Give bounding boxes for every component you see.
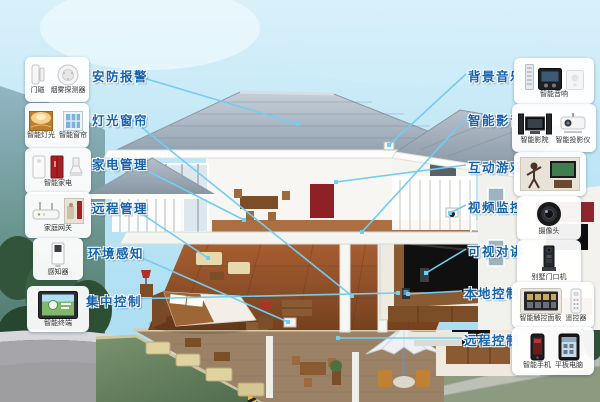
projector-icon [558,112,588,136]
touch-panel-icon [520,288,562,314]
device-caption: 智能手机 [523,362,551,370]
card-lighting: 智能灯光 智能窗帘 [25,103,89,148]
smart-home-diagram: 门磁 烟雾探测器 安防报警 智能灯光 [0,0,600,402]
fridge-icon [50,155,64,179]
label-central-control: 集中控制 [86,291,142,310]
label-video-intercom: 可视对讲 [468,241,524,260]
label-appliance-management: 家电管理 [92,154,148,173]
device-caption: 智能影院 [521,137,549,145]
device-caption: 烟雾探测器 [51,87,86,95]
range-hood-icon [68,155,84,179]
tablet-device: 平板电脑 [555,333,583,370]
dome-camera-icon [535,201,563,227]
label-remote-management: 远程管理 [92,198,148,217]
device-caption: 家庭网关 [44,225,72,233]
card-game [514,152,586,196]
smart-light-icon [29,111,53,131]
tablet-icon [558,333,580,361]
projector-device: 智能投影仪 [556,112,591,145]
card-av: 智能影院 智能投影仪 [512,104,596,152]
smoke-detector-device: 烟雾探测器 [51,64,86,95]
device-caption: 门磁 [31,87,45,95]
sensor-panel-icon [51,242,65,268]
device-caption: 智能窗帘 [59,132,87,140]
device-caption: 感知器 [48,269,69,277]
device-caption: 遥控器 [566,315,587,323]
smoke-detector-icon [57,64,79,86]
device-caption: 平板电脑 [555,362,583,370]
door-magnet-icon [29,64,47,86]
home-theater-device: 智能影院 [518,112,552,145]
card-remote-control: 智能手机 平板电脑 [512,327,594,375]
motion-game-icon [520,157,580,191]
device-caption: 智能投影仪 [556,137,591,145]
home-gateway-icon [32,200,60,224]
door-station-icon [541,245,557,273]
label-security-alarm: 安防报警 [92,66,148,85]
card-security: 门磁 烟雾探测器 [25,57,89,102]
touch-panel-device: 智能触控面板 [520,288,562,323]
card-doorphone: 别墅门口机 [517,240,581,286]
audio-wall-panel-icon [538,68,562,90]
card-sensor: 感知器 [33,238,83,280]
label-lighting-curtain: 灯光窗帘 [92,110,148,129]
white-speaker-icon [566,70,584,90]
card-appliances: 智能家电 [25,148,91,194]
smart-terminal-icon [38,291,78,319]
device-caption: 智能触控面板 [520,315,562,323]
speaker-tower-icon [525,64,534,90]
water-heater-icon [32,155,46,179]
device-caption: 智能灯光 [27,132,55,140]
label-environment-sensing: 环境感知 [88,243,144,262]
card-camera: 摄像头 [517,196,581,240]
card-local-control: 智能触控面板 遥控器 [512,282,594,328]
device-caption: 智能家电 [44,180,72,188]
home-theater-icon [518,112,552,136]
card-gateway: 家庭网关 [25,192,91,238]
door-magnet-device: 门磁 [29,64,47,95]
smartphone-device: 智能手机 [523,333,551,370]
device-caption: 别墅门口机 [532,274,567,282]
smart-curtain-icon [63,111,83,131]
remote-control-icon [570,288,582,314]
device-caption: 智能终端 [44,320,72,328]
device-caption: 摄像头 [539,228,560,236]
device-caption: 智能音响 [540,91,568,99]
remote-control-device: 遥控器 [566,288,587,323]
kitchen-photo [64,198,84,224]
label-video-surveillance: 视频监控 [468,197,524,216]
smart-light-device: 智能灯光 [27,111,55,140]
smart-curtain-device: 智能窗帘 [59,111,87,140]
smartphone-icon [530,333,545,361]
card-terminal: 智能终端 [27,286,89,332]
card-audio: 智能音响 [514,58,594,104]
